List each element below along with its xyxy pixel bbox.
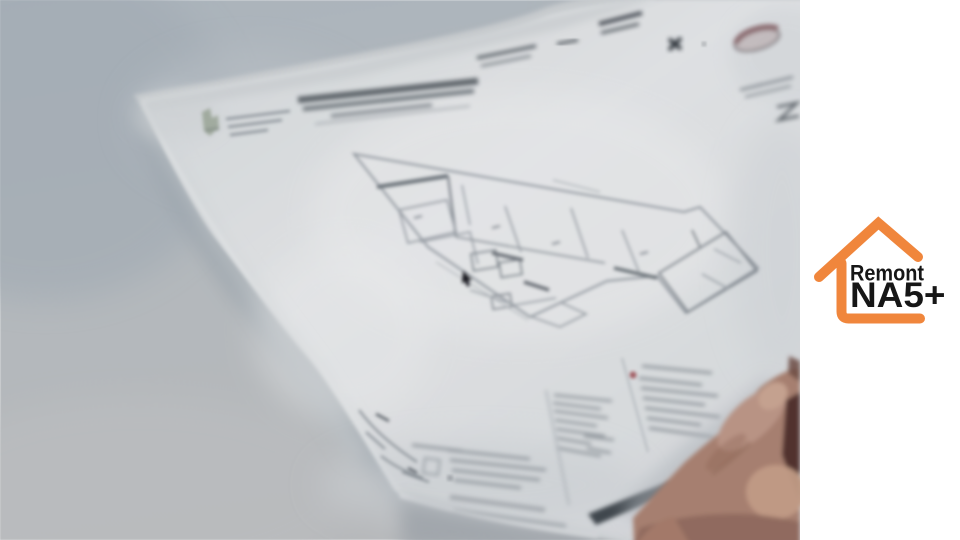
svg-text:NA5+: NA5+ [850,275,946,315]
